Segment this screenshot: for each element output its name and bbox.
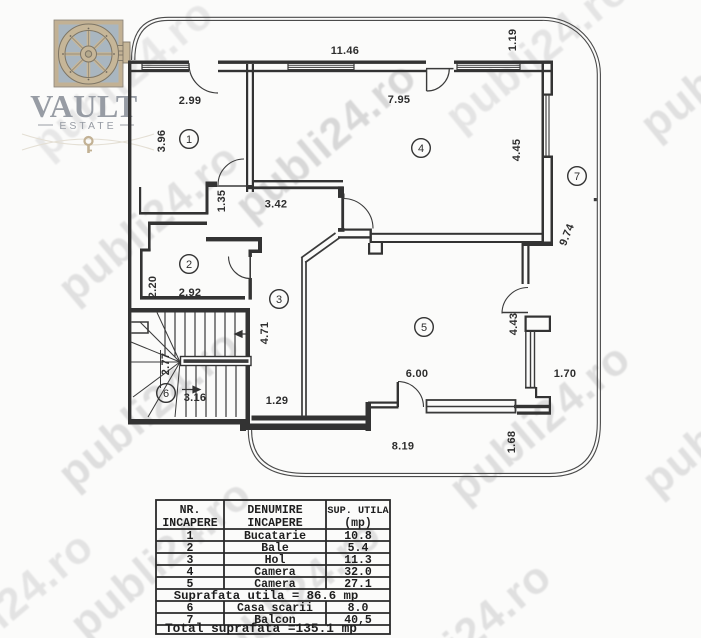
svg-text:NR.: NR. [180,504,201,517]
svg-text:Total suprafata =135.1 mp: Total suprafata =135.1 mp [165,621,357,636]
svg-text:1.68: 1.68 [506,431,518,454]
svg-text:(mp): (mp) [344,517,372,530]
svg-text:1.70: 1.70 [554,368,577,380]
svg-text:VAULT: VAULT [30,88,137,124]
svg-text:2: 2 [186,259,192,271]
svg-text:7: 7 [574,171,580,183]
svg-text:INCAPERE: INCAPERE [162,517,217,530]
svg-text:1: 1 [186,134,192,146]
svg-text:3.16: 3.16 [184,392,207,404]
svg-text:1.29: 1.29 [266,395,289,407]
svg-text:2.77: 2.77 [160,353,172,376]
svg-text:2.92: 2.92 [179,287,202,299]
svg-text:3.96: 3.96 [156,130,168,153]
svg-text:3.42: 3.42 [265,199,288,211]
svg-text:ESTATE: ESTATE [59,120,116,132]
svg-text:1.35: 1.35 [216,190,228,213]
svg-text:6: 6 [163,388,169,400]
svg-text:DENUMIRE: DENUMIRE [247,504,302,517]
svg-text:5: 5 [421,322,427,334]
svg-text:2.99: 2.99 [179,95,202,107]
svg-text:Suprafata utila = 86.6 mp: Suprafata utila = 86.6 mp [174,589,358,603]
svg-text:3: 3 [276,294,282,306]
svg-text:4: 4 [418,143,424,155]
svg-text:4.43: 4.43 [508,313,520,336]
svg-text:11.46: 11.46 [331,45,359,57]
svg-text:7.95: 7.95 [388,94,411,106]
svg-text:1.19: 1.19 [507,29,519,52]
svg-text:4.71: 4.71 [259,322,271,345]
svg-text:6.00: 6.00 [406,368,429,380]
svg-text:INCAPERE: INCAPERE [247,517,302,530]
svg-text:2.20: 2.20 [147,276,159,299]
svg-text:8.19: 8.19 [392,441,415,453]
svg-text:SUP. UTILA: SUP. UTILA [327,506,389,517]
svg-text:4.45: 4.45 [511,139,523,162]
